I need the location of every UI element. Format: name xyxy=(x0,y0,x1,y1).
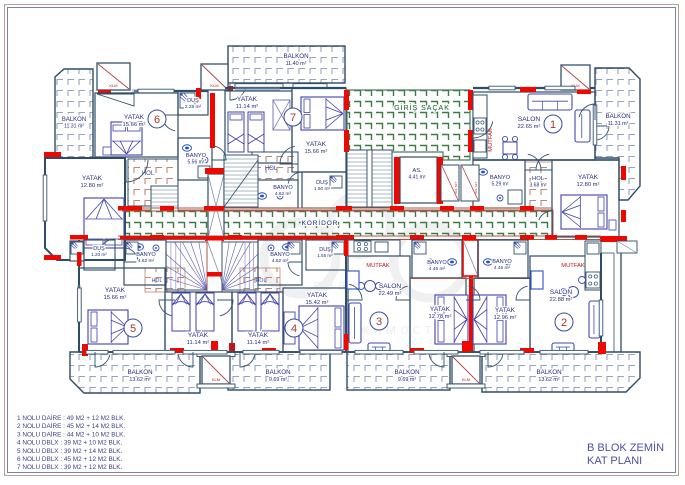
svg-text:HOL: HOL xyxy=(256,278,267,284)
svg-text:KLM: KLM xyxy=(210,83,218,88)
svg-text:KLM: KLM xyxy=(109,83,117,88)
svg-text:TES. ŞFT: TES. ŞFT xyxy=(454,181,458,194)
svg-text:2 NOLU DAİRE : 45 M2 + 14 M2: 2 NOLU DAİRE : 45 M2 + 14 M2 BLK. xyxy=(17,421,125,430)
svg-text:KLM: KLM xyxy=(462,377,470,382)
svg-text:BALKON9.69 m²: BALKON9.69 m² xyxy=(265,369,290,383)
svg-text:HOL: HOL xyxy=(265,166,278,172)
svg-text:7: 7 xyxy=(290,112,296,124)
svg-text:KORİDOR: KORİDOR xyxy=(302,218,339,227)
svg-text:4: 4 xyxy=(291,323,297,335)
svg-text:BALKON9.69 m²: BALKON9.69 m² xyxy=(394,369,419,383)
svg-text:MUTFAK: MUTFAK xyxy=(488,128,494,152)
svg-text:KLM: KLM xyxy=(212,377,220,382)
svg-text:BALKON11.40 m²: BALKON11.40 m² xyxy=(283,53,308,67)
svg-text:MUTFAK: MUTFAK xyxy=(366,263,390,269)
svg-text:7 NOLU DBLX : 39 M2 + 12 M2 BL: 7 NOLU DBLX : 39 M2 + 12 M2 BLK. xyxy=(17,464,123,471)
svg-text:BALKON13.62 m²: BALKON13.62 m² xyxy=(127,369,152,383)
svg-text:BALKON13.62 m²: BALKON13.62 m² xyxy=(536,369,561,383)
svg-text:HOL: HOL xyxy=(152,278,163,284)
svg-text:BANYO5.56 m²: BANYO5.56 m² xyxy=(186,153,207,165)
svg-text:5: 5 xyxy=(130,323,136,335)
svg-text:1: 1 xyxy=(550,119,556,131)
svg-text:4 NOLU DBLX : 39 M2 + 10 M2 BL: 4 NOLU DBLX : 39 M2 + 10 M2 BLK. xyxy=(17,440,123,447)
svg-text:HOL: HOL xyxy=(142,171,155,177)
svg-text:6: 6 xyxy=(154,114,160,126)
svg-text:1 NOLU DAİRE : 49 M2 + 12 M2: 1 NOLU DAİRE : 49 M2 + 12 M2 BLK. xyxy=(17,413,125,422)
svg-text:BALKON11.31 m²: BALKON11.31 m² xyxy=(605,113,630,127)
svg-text:2: 2 xyxy=(561,317,567,329)
svg-text:3 NOLU DAİRE : 44 M2 + 10 M2: 3 NOLU DAİRE : 44 M2 + 10 M2 BLK. xyxy=(17,429,125,438)
svg-text:B BLOK ZEMİN: B BLOK ZEMİN xyxy=(587,441,664,454)
svg-text:GİRİŞ SAÇAK: GİRİŞ SAÇAK xyxy=(394,103,450,112)
svg-text:6 NOLU DBLX : 45 M2 + 12 M2 BL: 6 NOLU DBLX : 45 M2 + 12 M2 BLK. xyxy=(17,456,123,463)
svg-text:5 NOLU DBLX : 39 M2 + 14 M2 BL: 5 NOLU DBLX : 39 M2 + 14 M2 BLK. xyxy=(17,448,123,455)
svg-text:3: 3 xyxy=(376,316,382,328)
svg-text:BALKON11.31 m²: BALKON11.31 m² xyxy=(62,117,86,130)
svg-text:KAT PLANI: KAT PLANI xyxy=(587,455,642,467)
svg-text:MUTFAK: MUTFAK xyxy=(561,263,585,269)
svg-text:BANYO5.29 m²: BANYO5.29 m² xyxy=(490,175,511,187)
svg-text:TES. ŞFT: TES. ŞFT xyxy=(474,181,478,194)
